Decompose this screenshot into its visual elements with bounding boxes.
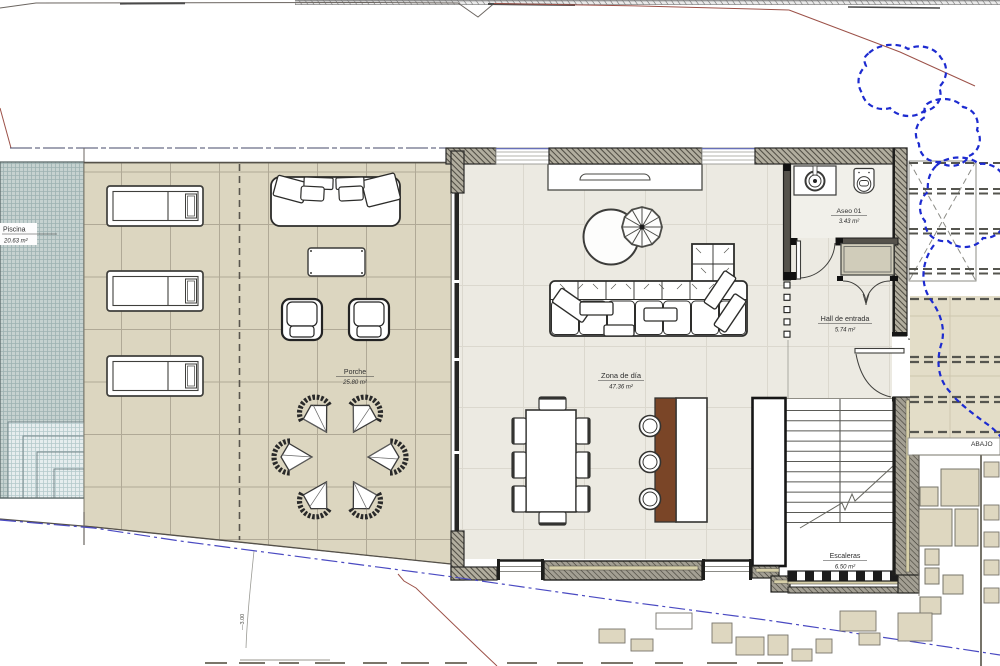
svg-text:Piscina: Piscina [3, 227, 26, 234]
svg-text:25.80 m²: 25.80 m² [342, 380, 368, 386]
svg-text:Hall de entrada: Hall de entrada [821, 314, 870, 323]
svg-text:ABAJO: ABAJO [971, 441, 993, 448]
svg-text:Zona de día: Zona de día [601, 371, 642, 380]
svg-text:Porche: Porche [344, 369, 366, 376]
svg-text:Escaleras: Escaleras [830, 553, 861, 560]
svg-text:20.63 m²: 20.63 m² [3, 239, 29, 245]
svg-text:6.50 m²: 6.50 m² [835, 565, 856, 571]
svg-text:5.74 m²: 5.74 m² [835, 328, 856, 334]
svg-text:Aseo 01: Aseo 01 [837, 208, 862, 215]
svg-text:3.43 m²: 3.43 m² [839, 219, 860, 225]
svg-text:—3.00: —3.00 [240, 614, 246, 630]
svg-text:47.36 m²: 47.36 m² [609, 385, 634, 391]
